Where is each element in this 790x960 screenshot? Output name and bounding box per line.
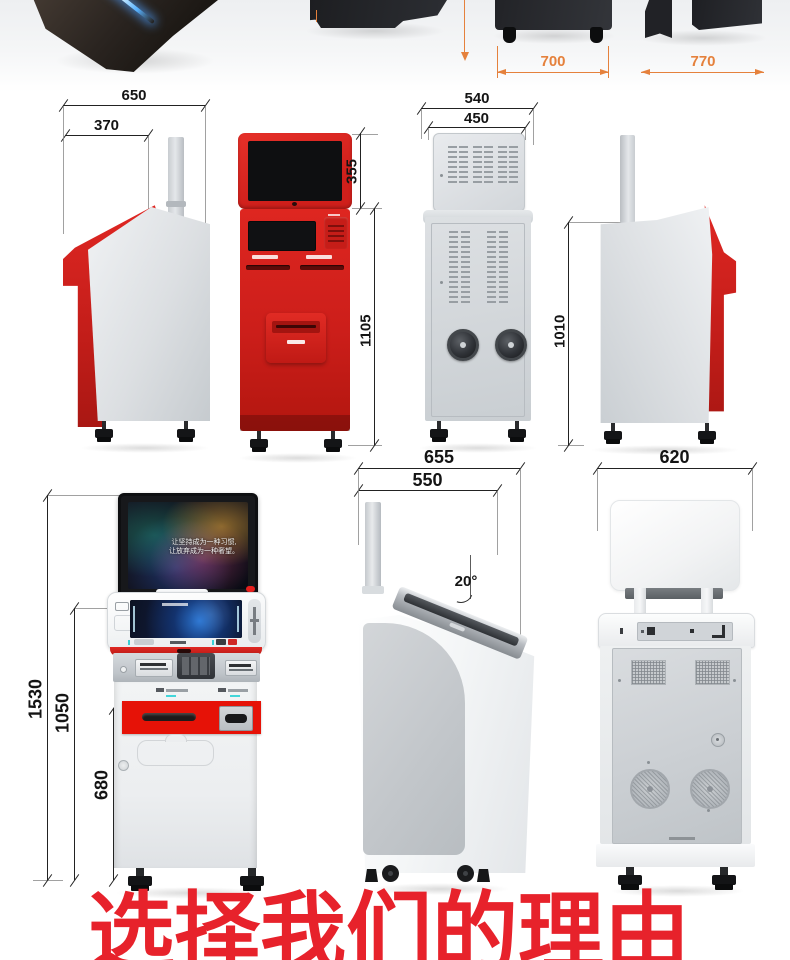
dim-700-arrow-left (497, 69, 506, 75)
screen-caption: 让坚持成为一种习惯, 让放弃成为一种奢望。 (162, 538, 246, 556)
mast-joint (362, 586, 384, 594)
red-kiosk-side-right-view: 1010 (550, 85, 760, 455)
lower-body (114, 682, 257, 868)
dim-370-line (65, 135, 148, 136)
white-kiosk-side-view: 655 550 20° (345, 455, 560, 900)
caster-wheel (382, 865, 399, 882)
head-back-panel (433, 133, 525, 212)
door-handle-outline[interactable] (137, 740, 214, 766)
side-gray-panel (363, 623, 465, 855)
dim-1105-label: 1105 (358, 301, 374, 361)
white-kiosk-front-view: 1530 1050 680 让坚持成为一种习惯, 让放弃成为一种奢望。 (25, 455, 295, 900)
dim-770-arrow-left (641, 69, 650, 75)
logo-mark (162, 603, 188, 606)
kiosk-mast (365, 502, 381, 592)
back-body (600, 646, 751, 844)
cash-slot[interactable] (142, 713, 196, 721)
door-lock[interactable] (118, 760, 129, 771)
kiosk-mast (168, 137, 184, 221)
slot-label (252, 255, 278, 259)
dim-620-line (597, 468, 752, 469)
dim-vertical-line (464, 0, 465, 52)
kiosk-gray-body (597, 207, 717, 423)
dim-655-line (358, 468, 520, 469)
kiosk-mast (620, 135, 635, 223)
logo-mark (328, 214, 340, 216)
receipt-slot-box[interactable] (219, 706, 253, 731)
dim-down-arrow (461, 52, 469, 61)
dim-770-label: 770 (670, 53, 736, 70)
dark-kiosk-bottom-slab (692, 0, 762, 30)
dim-700-arrow-right (600, 69, 609, 75)
dim-550-label: 550 (358, 472, 497, 489)
product-dimension-sheet: 700 770 650 370 (0, 0, 790, 960)
screen-back-panel (610, 500, 740, 591)
screen-caption-line1: 让坚持成为一种习惯, (172, 539, 237, 546)
kiosk-gray-body (88, 207, 210, 421)
dark-kiosk-bottom-front (495, 0, 612, 30)
dim-770-line (641, 72, 764, 73)
slot-label (306, 255, 332, 259)
back-door[interactable] (612, 648, 742, 844)
red-kiosk-side-left-view: 650 370 (55, 85, 220, 455)
kiosk-body (240, 209, 350, 431)
top-io-bar (598, 613, 755, 648)
console-panel (107, 592, 266, 651)
dim-700-label: 700 (520, 53, 586, 70)
caster-wheel (590, 27, 603, 43)
cooling-fan (630, 769, 670, 809)
card-reader-right[interactable] (225, 660, 257, 676)
page-title: 选择我们的理由 (88, 890, 728, 960)
console-button[interactable] (216, 639, 226, 645)
mast-joint (166, 201, 186, 207)
base-plinth (596, 844, 755, 867)
io-recess-strip (637, 622, 733, 641)
secondary-screen[interactable] (248, 221, 316, 251)
console-button[interactable] (134, 639, 154, 645)
red-kiosk-back-view: 540 450 (418, 85, 540, 455)
white-kiosk-back-view: 620 (580, 455, 775, 900)
caster-wheel (503, 27, 516, 43)
dark-kiosk-leg (645, 0, 672, 38)
card-reader[interactable] (324, 217, 348, 249)
screen-angle-label: 20° (446, 573, 486, 589)
cooling-fan (690, 769, 730, 809)
dim-770-arrow-right (755, 69, 764, 75)
foot-wedge (365, 869, 378, 882)
camera-dot (292, 202, 297, 206)
dim-1050-label: 1050 (54, 681, 72, 745)
pin-keypad[interactable] (177, 653, 215, 679)
door-lock[interactable] (711, 733, 725, 747)
touchscreen[interactable] (248, 141, 342, 201)
dim-1010-label: 1010 (552, 303, 568, 359)
printer-module (266, 313, 326, 363)
dim-650-line (63, 105, 205, 106)
dim-355-label: 355 (344, 148, 360, 194)
foot-wedge (477, 869, 490, 882)
dim-450-label: 450 (418, 110, 535, 126)
screen-caption-line2: 让放弃成为一种奢望。 (169, 548, 239, 555)
dim-700-line (497, 72, 609, 73)
dim-450-line (428, 127, 525, 128)
main-screen[interactable]: 让坚持成为一种习惯, 让放弃成为一种奢望。 (118, 493, 258, 598)
slot-label (166, 689, 188, 692)
vent-grille (631, 660, 666, 685)
cooling-fan (447, 329, 479, 361)
dim-650-label: 650 (55, 87, 213, 103)
dim-680-label: 680 (93, 757, 111, 813)
dim-1530-line (47, 495, 48, 880)
hero-strip: 700 770 (0, 0, 790, 92)
screen-content: 让坚持成为一种习惯, 让放弃成为一种奢望。 (128, 502, 248, 589)
display-head (238, 133, 352, 209)
slot-label (156, 688, 164, 692)
dim-540-label: 540 (418, 90, 536, 106)
dim-1530-label: 1530 (27, 667, 45, 731)
dim-620-label: 620 (597, 449, 752, 466)
caster-wheel (457, 865, 474, 882)
reader-band (113, 653, 260, 682)
dispenser-slot[interactable] (300, 265, 344, 270)
dim-1050-line (74, 608, 75, 880)
slot-label (228, 689, 248, 692)
red-kiosk-front-view: 355 1105 (238, 133, 388, 458)
slot-label (218, 688, 226, 692)
operator-screen[interactable] (130, 600, 242, 638)
logo-mark (287, 340, 305, 344)
card-reader-left[interactable] (135, 659, 173, 677)
cooling-fan (495, 329, 527, 361)
cd-slot-icon (115, 602, 129, 611)
volume-rocker[interactable] (248, 599, 261, 643)
dim-655-label: 655 (358, 449, 520, 466)
dispenser-slot[interactable] (246, 265, 290, 270)
vent-grille (695, 660, 730, 685)
dispenser-red-panel (122, 701, 261, 734)
console-button[interactable] (228, 639, 237, 645)
door-outline[interactable] (431, 223, 525, 417)
led-light-strip (105, 0, 155, 24)
dim-370-label: 370 (55, 117, 158, 133)
dim-extension-tick (316, 10, 317, 22)
